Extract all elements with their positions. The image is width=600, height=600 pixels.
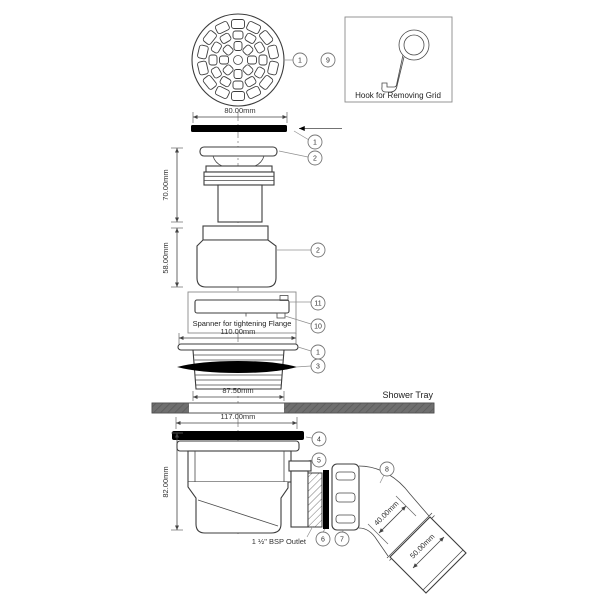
dim-body-height: 58.00mm: [161, 228, 183, 287]
callout-screw-flange: 1: [311, 345, 325, 359]
body-part: [197, 226, 276, 287]
callout-upper-flange: 2: [308, 151, 322, 165]
shower-waste-diagram: 1 9 Hook for Removing Grid 80.00mm 1 2: [0, 0, 600, 600]
grid-side-view: [191, 125, 287, 132]
callout-grid-side: 1: [308, 135, 322, 149]
grid-top-view: [192, 14, 284, 106]
dim-thread-width-label: 87.50mm: [222, 386, 253, 395]
shower-tray-label: Shower Tray: [382, 390, 433, 400]
dim-grid-width-label: 80.00mm: [224, 106, 255, 115]
dim-elbow-od-label: 40.00mm: [372, 499, 400, 527]
hook-note: Hook for Removing Grid: [355, 91, 441, 100]
elbow-and-pipe: [359, 466, 466, 593]
top-seal: [172, 431, 304, 440]
callout-spanner-pin-label: 10: [314, 324, 322, 331]
dim-upper-height-label: 70.00mm: [161, 169, 170, 200]
callout-spanner-pin: 10: [311, 319, 325, 333]
callout-nut: 7: [335, 532, 349, 546]
callout-elbow: 8: [380, 462, 394, 476]
dim-trap-height-label: 82.00mm: [161, 466, 170, 497]
bsp-outlet-label: 1 ½" BSP Outlet: [252, 537, 307, 546]
callout-upper-flange-label: 2: [313, 156, 317, 163]
callout-washer-label: 6: [321, 537, 325, 544]
callout-nut-label: 7: [340, 537, 344, 544]
callout-hook-label: 9: [326, 58, 330, 65]
callout-elbow-label: 8: [385, 467, 389, 474]
shower-tray: Shower Tray: [152, 390, 434, 413]
dim-grid-width: 80.00mm: [193, 106, 287, 123]
callout-washer: 6: [316, 532, 330, 546]
callout-grid-side-label: 1: [313, 140, 317, 147]
dim-trap-flange-width-label: 117.00mm: [221, 412, 256, 421]
callout-trap-body-label: 5: [317, 458, 321, 465]
callout-top-seal: 4: [312, 432, 326, 446]
callout-hook: 9: [321, 53, 335, 67]
callout-trap-body: 5: [312, 453, 326, 467]
callout-spanner-label: 11: [314, 301, 321, 308]
callout-screw-flange-label: 1: [316, 350, 320, 357]
hook-inset: Hook for Removing Grid: [345, 17, 452, 102]
callout-gasket: 3: [311, 359, 325, 373]
diagram-page: 1 9 Hook for Removing Grid 80.00mm 1 2: [0, 0, 600, 600]
dim-body-height-label: 58.00mm: [161, 242, 170, 273]
callout-body: 2: [311, 243, 325, 257]
washer: [323, 470, 329, 529]
trap-assembly: [172, 431, 304, 533]
dim-trap-flange-width: 117.00mm: [176, 412, 297, 429]
callout-top-seal-label: 4: [317, 437, 321, 444]
dim-upper-height: 70.00mm: [161, 148, 183, 222]
bsp-thread: [308, 473, 322, 527]
callout-grid-top-label: 1: [298, 58, 302, 65]
callout-grid-top: 1: [293, 53, 307, 67]
upper-flange-part: [200, 147, 277, 222]
callout-spanner: 11: [311, 296, 325, 310]
dim-flange-width-label: 110.00mm: [221, 327, 256, 336]
screw-flange-part: [177, 344, 298, 389]
callout-gasket-label: 3: [316, 364, 320, 371]
callout-body-label: 2: [316, 248, 320, 255]
outlet-pipe: [390, 517, 466, 593]
